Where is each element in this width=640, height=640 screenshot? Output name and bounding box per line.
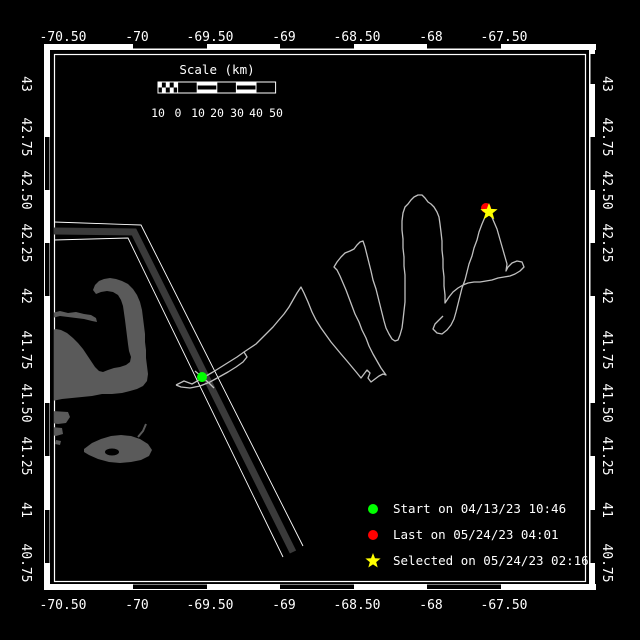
border-segment xyxy=(45,137,50,190)
scale-bar-label: 10 xyxy=(151,106,165,120)
axis-label-bottom: -70.50 xyxy=(40,598,87,613)
start-marker xyxy=(197,372,207,382)
border-segment xyxy=(591,243,596,296)
border-band-left xyxy=(44,44,50,590)
axis-label-left: 40.75 xyxy=(18,543,33,582)
axis-label-bottom: -68.50 xyxy=(334,598,381,613)
axis-labels: -70.50-70-69.50-69-68.50-68-67.50-70.50-… xyxy=(18,30,614,613)
axis-label-right: 40.75 xyxy=(599,543,614,582)
land-layer xyxy=(52,278,152,463)
axis-label-left: 41.25 xyxy=(18,436,33,475)
axis-label-left: 43 xyxy=(18,76,33,92)
scale-checker-cell xyxy=(162,88,166,94)
axis-label-left: 42.25 xyxy=(18,223,33,262)
scale-stripe xyxy=(236,90,256,94)
scale-checker-cell xyxy=(170,88,174,94)
axis-label-top: -70 xyxy=(125,30,148,45)
scale-bar-label: 10 xyxy=(191,106,205,120)
glider-track xyxy=(176,195,524,388)
landmass xyxy=(84,435,152,463)
scale-bar-title: Scale (km) xyxy=(179,62,254,77)
axis-label-right: 42 xyxy=(599,288,614,304)
axis-label-left: 42 xyxy=(18,288,33,304)
scale-bar-label: 20 xyxy=(210,106,224,120)
scale-checker-cell xyxy=(166,82,170,88)
lane-edge xyxy=(54,238,283,557)
land-spit xyxy=(138,424,146,437)
border-segment xyxy=(591,403,596,456)
scale-bar: Scale (km) 1001020304050 xyxy=(151,62,283,120)
axis-label-bottom: -69 xyxy=(272,598,295,613)
border-segment xyxy=(427,585,501,590)
scale-bar-label: 30 xyxy=(230,106,244,120)
border-segment xyxy=(45,510,50,563)
landmass xyxy=(55,440,61,445)
axis-label-top: -68.50 xyxy=(334,30,381,45)
axis-label-top: -69 xyxy=(272,30,295,45)
border-band-right xyxy=(589,44,595,590)
legend-last-dot-icon xyxy=(368,530,378,540)
axis-label-bottom: -69.50 xyxy=(187,598,234,613)
axis-label-top: -70.50 xyxy=(40,30,87,45)
axis-label-top: -68 xyxy=(419,30,442,45)
scale-stripe xyxy=(197,82,217,86)
legend-start-dot-icon xyxy=(368,504,378,514)
border-segment xyxy=(280,585,354,590)
axis-label-bottom: -67.50 xyxy=(481,598,528,613)
axis-label-left: 42.50 xyxy=(18,170,33,209)
axis-label-left: 42.75 xyxy=(18,117,33,156)
scale-bar-label: 0 xyxy=(175,106,182,120)
scale-bar-label: 40 xyxy=(249,106,263,120)
border-segment xyxy=(591,510,596,563)
border-segment xyxy=(591,54,596,84)
axis-label-right: 41.50 xyxy=(599,383,614,422)
axis-label-right: 43 xyxy=(599,76,614,92)
scale-stripe xyxy=(236,82,256,86)
legend-start-label: Start on 04/13/23 10:46 xyxy=(393,501,566,516)
landmass xyxy=(52,311,97,322)
border-segment xyxy=(45,403,50,456)
axis-label-bottom: -68 xyxy=(419,598,442,613)
track-path xyxy=(176,195,524,385)
scale-checker-cell xyxy=(158,82,162,88)
axis-label-right: 42.75 xyxy=(599,117,614,156)
axis-label-right: 42.25 xyxy=(599,223,614,262)
axis-label-top: -69.50 xyxy=(187,30,234,45)
border-segment xyxy=(133,585,207,590)
axis-label-right: 42.50 xyxy=(599,170,614,209)
scale-bar-label: 50 xyxy=(269,106,283,120)
map-canvas: -70.50-70-69.50-69-68.50-68-67.50-70.50-… xyxy=(0,0,640,640)
axis-label-bottom: -70 xyxy=(125,598,148,613)
scale-stripe xyxy=(197,90,217,94)
axis-label-left: 41.75 xyxy=(18,330,33,369)
axis-label-left: 41.50 xyxy=(18,383,33,422)
legend-selected-star-icon xyxy=(365,553,380,568)
border-segment xyxy=(591,137,596,190)
axis-label-right: 41.75 xyxy=(599,330,614,369)
axis-label-left: 41 xyxy=(18,502,33,518)
map-plot: -70.50-70-69.50-69-68.50-68-67.50-70.50-… xyxy=(0,0,640,640)
axis-label-top: -67.50 xyxy=(481,30,528,45)
landmass xyxy=(52,411,70,424)
legend: Start on 04/13/23 10:46 Last on 05/24/23… xyxy=(365,501,588,568)
axis-label-right: 41 xyxy=(599,502,614,518)
border-segment xyxy=(45,243,50,296)
legend-last-label: Last on 05/24/23 04:01 xyxy=(393,527,559,542)
legend-selected-label: Selected on 05/24/23 02:16 xyxy=(393,553,589,568)
landmass xyxy=(52,278,148,401)
landmass xyxy=(52,427,63,436)
water-notch xyxy=(105,449,119,456)
scale-checker-cell xyxy=(174,82,178,88)
axis-label-right: 41.25 xyxy=(599,436,614,475)
